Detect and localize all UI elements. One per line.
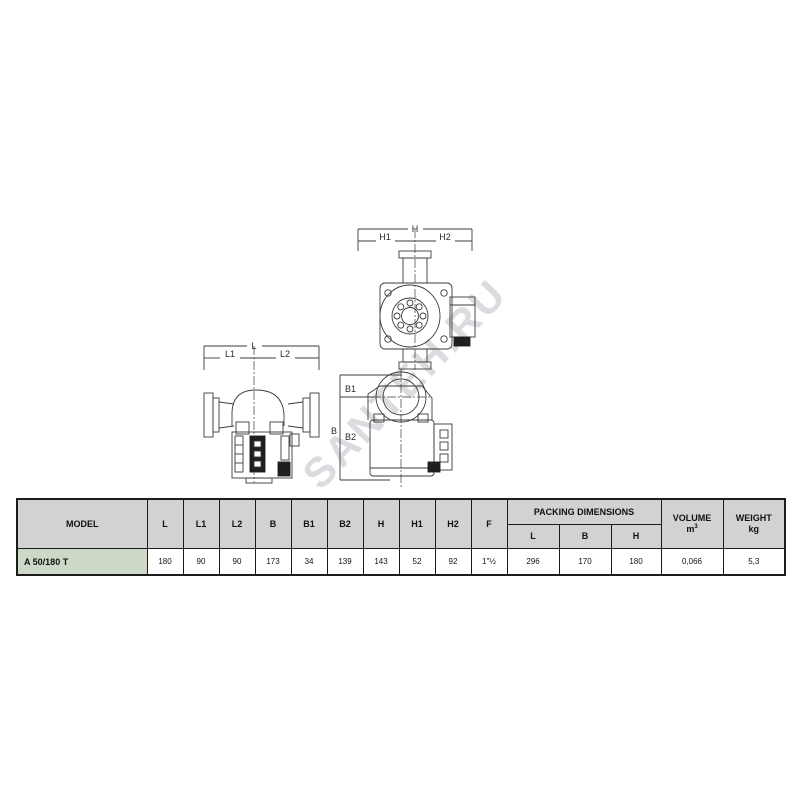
value-B1: 34 bbox=[291, 549, 327, 576]
col-header-B: B bbox=[255, 499, 291, 549]
drawing-front-view: H H1 H2 bbox=[350, 221, 482, 371]
value-H2: 92 bbox=[435, 549, 471, 576]
dim-label-B: B bbox=[331, 426, 337, 436]
value-packing-H: 180 bbox=[611, 549, 661, 576]
col-header-H: H bbox=[363, 499, 399, 549]
col-header-packing-L: L bbox=[507, 525, 559, 549]
value-packing-L: 296 bbox=[507, 549, 559, 576]
value-L2: 90 bbox=[219, 549, 255, 576]
model-name-cell: A 50/180 T bbox=[17, 549, 147, 576]
dim-label-L2: L2 bbox=[280, 349, 290, 359]
volume-unit-exponent: 3 bbox=[694, 524, 697, 530]
col-header-H1: H1 bbox=[399, 499, 435, 549]
dim-label-B1: B1 bbox=[345, 384, 356, 394]
value-volume: 0,066 bbox=[661, 549, 723, 576]
table-row-a50-180t: A 50/180 T 180 90 90 173 34 139 143 52 9… bbox=[17, 549, 785, 576]
col-header-volume: VOLUME m3 bbox=[661, 499, 723, 549]
value-B2: 139 bbox=[327, 549, 363, 576]
col-header-packing-dimensions: PACKING DIMENSIONS bbox=[507, 499, 661, 525]
drawing-top-view: B1 B B2 bbox=[328, 368, 468, 488]
col-header-packing-H: H bbox=[611, 525, 661, 549]
col-header-model: MODEL bbox=[17, 499, 147, 549]
value-B: 173 bbox=[255, 549, 291, 576]
col-header-B1: B1 bbox=[291, 499, 327, 549]
col-header-L: L bbox=[147, 499, 183, 549]
value-weight: 5,3 bbox=[723, 549, 785, 576]
col-header-B2: B2 bbox=[327, 499, 363, 549]
col-header-packing-B: B bbox=[559, 525, 611, 549]
value-H1: 52 bbox=[399, 549, 435, 576]
weight-unit: kg bbox=[748, 524, 759, 534]
value-packing-B: 170 bbox=[559, 549, 611, 576]
value-L: 180 bbox=[147, 549, 183, 576]
value-L1: 90 bbox=[183, 549, 219, 576]
drawing-side-view: L L1 L2 bbox=[194, 338, 328, 484]
dim-label-L1: L1 bbox=[225, 349, 235, 359]
col-header-H2: H2 bbox=[435, 499, 471, 549]
volume-label: VOLUME bbox=[673, 513, 712, 523]
dim-label-H2: H2 bbox=[439, 232, 451, 242]
dimensions-table: MODEL L L1 L2 B B1 B2 H H1 H2 F PACKING … bbox=[16, 498, 786, 576]
front-view-pump-body bbox=[380, 251, 475, 369]
dim-label-B2: B2 bbox=[345, 432, 356, 442]
datasheet-page: SANTEH.RU H H1 H2 bbox=[0, 0, 800, 800]
col-header-L1: L1 bbox=[183, 499, 219, 549]
top-view-dimension-lines: B1 B B2 bbox=[331, 369, 432, 487]
dim-label-H1: H1 bbox=[379, 232, 391, 242]
weight-label: WEIGHT bbox=[736, 513, 772, 523]
value-F: 1"½ bbox=[471, 549, 507, 576]
col-header-F: F bbox=[471, 499, 507, 549]
col-header-L2: L2 bbox=[219, 499, 255, 549]
col-header-weight: WEIGHT kg bbox=[723, 499, 785, 549]
top-view-pump-body bbox=[368, 372, 452, 476]
side-view-pump-body bbox=[204, 390, 319, 483]
value-H: 143 bbox=[363, 549, 399, 576]
